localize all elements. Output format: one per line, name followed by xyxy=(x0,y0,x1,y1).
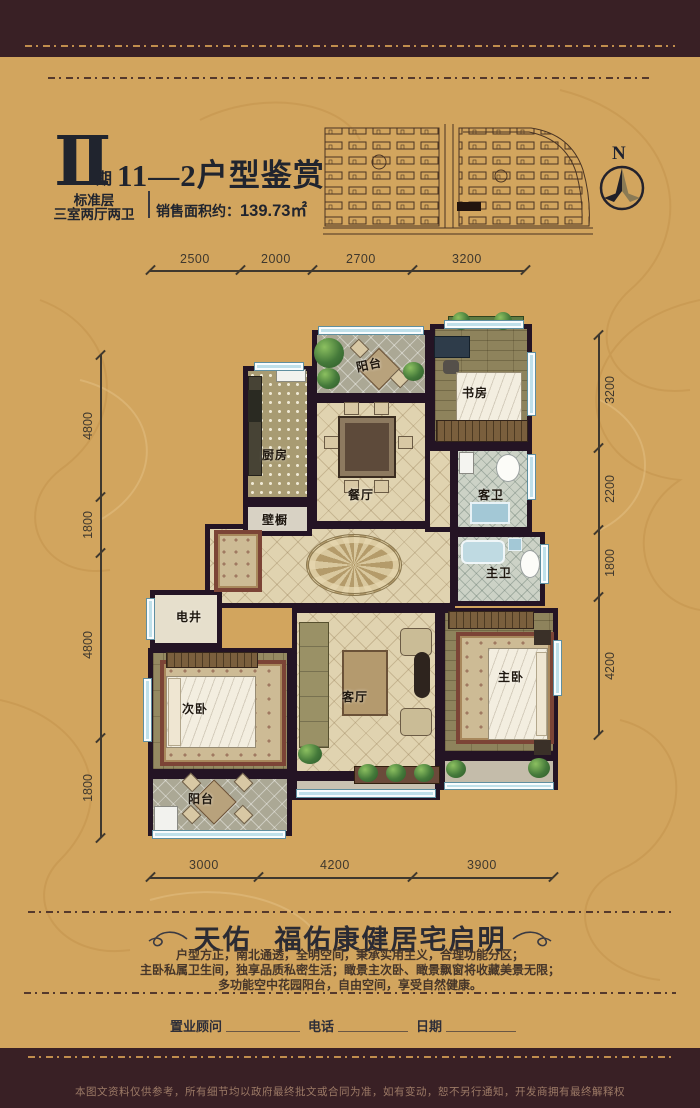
second-bed-pillow xyxy=(168,678,181,746)
page-title: 11—2户型鉴赏 xyxy=(117,150,325,195)
window xyxy=(540,544,549,584)
dining-table xyxy=(338,416,396,478)
dining-chair xyxy=(374,480,389,493)
dim-label: 2200 xyxy=(603,467,617,511)
sofa xyxy=(299,622,329,748)
sales-area-value: 139.73㎡ xyxy=(240,202,307,220)
dim-label: 3900 xyxy=(467,858,497,872)
dim-label: 3200 xyxy=(452,252,482,266)
plant xyxy=(317,368,340,389)
dimension-line-left xyxy=(100,355,102,838)
nightstand xyxy=(534,740,551,755)
room-label-master-bedroom: 主卧 xyxy=(498,668,524,685)
dim-label: 4800 xyxy=(81,623,95,667)
stove xyxy=(248,390,262,422)
disclaimer: 本图文资料仅供参考，所有细节均以政府最终批文或合同为准，如有变动，恕不另行通知，… xyxy=(0,1084,700,1099)
window xyxy=(444,782,554,790)
dim-label: 1800 xyxy=(81,766,95,810)
window xyxy=(527,352,536,416)
master-wardrobe xyxy=(448,611,534,629)
bath-sink xyxy=(508,538,522,551)
floorplan-poster: Ⅱ 期 11—2户型鉴赏 标准层 三室两厅两卫 销售面积约：139.73㎡ N xyxy=(0,0,700,1108)
date-blank-line xyxy=(446,1031,516,1032)
entry-rug xyxy=(214,530,262,592)
dim-label: 2500 xyxy=(180,252,210,266)
bath-vanity xyxy=(470,502,510,524)
plant xyxy=(446,760,466,778)
dim-label: 3000 xyxy=(189,858,219,872)
plant xyxy=(528,758,550,778)
dimension-line-bottom xyxy=(150,877,553,879)
window xyxy=(527,454,536,500)
plant xyxy=(386,764,406,782)
top-band-ornament-line xyxy=(25,45,675,47)
tv-cabinet xyxy=(414,652,430,698)
toilet xyxy=(520,550,540,578)
nightstand xyxy=(534,630,551,645)
upper-ornament-line xyxy=(48,77,652,79)
bathtub xyxy=(461,540,505,564)
dimension-line-right xyxy=(598,335,600,735)
room-label-master-bath: 主卫 xyxy=(486,564,512,581)
phase-char: 期 xyxy=(96,165,112,189)
footer-ornament-line-top xyxy=(28,911,672,913)
room-label-study: 书房 xyxy=(462,384,488,401)
bedroom-wardrobe xyxy=(166,652,258,668)
header-divider xyxy=(148,191,150,218)
dim-label: 4200 xyxy=(603,644,617,688)
dining-chair xyxy=(344,402,359,415)
window xyxy=(146,598,155,640)
window xyxy=(143,678,152,742)
dim-label: 2700 xyxy=(346,252,376,266)
description-line: 多功能空中花园阳台，自由空间，享受自然健康。 xyxy=(0,976,700,993)
study-desk xyxy=(434,336,470,358)
washing-machine xyxy=(459,452,474,474)
window xyxy=(152,830,286,839)
master-bed-pillow xyxy=(536,652,547,736)
window xyxy=(254,362,304,371)
dining-chair xyxy=(324,436,339,449)
phone-blank-line xyxy=(338,1031,408,1032)
room-label-balcony-bottom: 阳台 xyxy=(188,790,214,807)
site-plan-map xyxy=(323,124,593,240)
laundry-machine xyxy=(154,806,178,832)
advisor-label: 置业顾问 xyxy=(170,1016,222,1035)
room-label-kitchen: 厨房 xyxy=(262,446,288,463)
plant xyxy=(314,338,344,368)
footer-ornament-line-bottom xyxy=(24,992,676,994)
dim-label: 3200 xyxy=(603,368,617,412)
sales-area: 销售面积约：139.73㎡ xyxy=(156,197,307,221)
dim-label: 4800 xyxy=(81,404,95,448)
dim-label: 2000 xyxy=(261,252,291,266)
plant xyxy=(358,764,378,782)
floor-medallion xyxy=(306,534,402,596)
room-label-closet: 壁橱 xyxy=(262,511,288,528)
dim-label: 1800 xyxy=(81,503,95,547)
dimension-line-top xyxy=(150,270,525,272)
plant xyxy=(414,764,434,782)
plant xyxy=(403,362,424,381)
north-compass-icon xyxy=(596,162,648,214)
window xyxy=(553,640,562,696)
coffee-table xyxy=(342,650,388,716)
room-label-second-bedroom: 次卧 xyxy=(182,700,208,717)
phone-label: 电话 xyxy=(308,1016,334,1035)
window xyxy=(318,326,424,335)
dim-label: 1800 xyxy=(603,541,617,585)
top-border-band xyxy=(0,0,700,57)
toilet xyxy=(496,454,520,482)
armchair xyxy=(400,628,432,656)
layout-type-label: 三室两厅两卫 xyxy=(40,203,148,223)
study-wardrobe xyxy=(436,420,528,442)
plant xyxy=(298,744,322,764)
advisor-blank-line xyxy=(226,1031,300,1032)
dining-chair xyxy=(374,402,389,415)
armchair xyxy=(400,708,432,736)
date-label: 日期 xyxy=(416,1016,442,1035)
room-label-dining: 餐厅 xyxy=(348,486,374,503)
dining-chair xyxy=(398,436,413,449)
window xyxy=(296,789,436,798)
bottom-band-ornament-line xyxy=(28,1056,672,1058)
room-label-guest-bath: 客卫 xyxy=(478,486,504,503)
room-label-living: 客厅 xyxy=(342,688,368,705)
dim-label: 4200 xyxy=(320,858,350,872)
window xyxy=(444,320,524,329)
room-label-shaft: 电井 xyxy=(176,608,202,625)
sales-area-label: 销售面积约： xyxy=(156,203,240,219)
